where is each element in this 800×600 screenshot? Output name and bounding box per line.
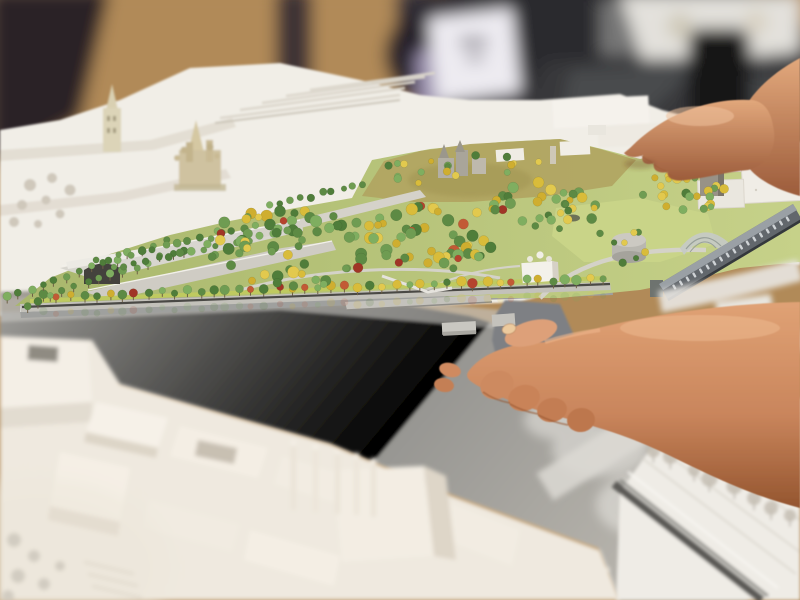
model-tree — [374, 221, 381, 228]
tree-reflection — [457, 294, 466, 303]
model-tree — [266, 201, 273, 208]
model-tree — [652, 174, 659, 181]
photo-architectural-model-scene — [0, 0, 800, 600]
model-tree — [406, 203, 418, 215]
model-tree — [534, 275, 542, 283]
model-tree — [76, 268, 83, 275]
finger-contact-shadow — [624, 159, 656, 169]
model-tree — [320, 281, 327, 288]
model-tree — [340, 281, 349, 290]
tree-reflection — [129, 306, 137, 314]
glassware — [744, 10, 768, 34]
model-tree — [532, 222, 539, 229]
tree-reflection — [393, 297, 401, 305]
tree-reflection — [407, 299, 413, 305]
model-tree — [394, 175, 402, 183]
model-tree — [28, 286, 36, 294]
model-tree — [693, 193, 700, 200]
model-tree — [577, 192, 587, 202]
model-tree — [93, 257, 99, 263]
tree-reflection — [236, 302, 243, 309]
model-tree — [196, 234, 204, 242]
model-tree — [215, 235, 225, 245]
model-tree — [149, 246, 156, 253]
model-tree — [483, 276, 493, 286]
model-tree — [523, 275, 531, 283]
tree-reflection — [560, 292, 569, 301]
model-tree — [452, 172, 459, 179]
model-tree — [600, 275, 607, 282]
model-tree — [163, 241, 170, 248]
tree-reflection — [572, 293, 581, 302]
model-tree — [14, 289, 21, 296]
model-tree — [138, 247, 146, 255]
model-tree — [587, 274, 595, 282]
model-tree — [165, 253, 173, 261]
tree-reflection — [508, 296, 514, 302]
model-tree — [252, 222, 259, 229]
model-tree — [657, 183, 664, 190]
tree-reflection — [277, 301, 283, 307]
model-tree — [256, 232, 264, 240]
tree-reflection — [302, 301, 308, 307]
model-tree — [633, 255, 639, 261]
tree-reflection — [198, 306, 205, 313]
model-tree — [319, 188, 327, 196]
model-tree — [562, 201, 569, 208]
model-tree — [187, 247, 195, 255]
model-tree — [392, 239, 400, 247]
model-tree — [280, 217, 287, 224]
model-tree — [663, 203, 670, 210]
model-tree — [547, 215, 556, 224]
model-tree — [504, 169, 510, 175]
tree-reflection — [431, 298, 437, 304]
model-tree — [394, 160, 401, 167]
model-tree — [171, 290, 178, 297]
model-tree — [658, 192, 666, 200]
model-tree — [50, 277, 57, 284]
white-slab — [552, 95, 649, 128]
model-tree — [156, 254, 162, 260]
model-tree — [34, 297, 42, 305]
model-tree — [393, 280, 402, 289]
tree-reflection — [81, 309, 89, 317]
tree-reflection — [600, 293, 606, 299]
model-tree — [505, 198, 516, 209]
model-tree — [210, 285, 219, 294]
model-tree — [118, 290, 127, 299]
tree-reflection — [118, 307, 126, 315]
tree-reflection — [468, 296, 477, 305]
model-tree — [243, 244, 251, 252]
model-tree — [312, 276, 320, 284]
model-tree — [700, 205, 708, 213]
model-tree — [467, 230, 479, 242]
model-tree — [3, 292, 12, 301]
model-tree — [415, 180, 421, 186]
model-tree — [116, 252, 122, 258]
model-tree — [120, 263, 127, 270]
model-tree — [431, 281, 438, 288]
model-tree — [382, 250, 392, 260]
tree-reflection — [379, 301, 385, 307]
tree-reflection — [497, 297, 503, 303]
tree-reflection — [247, 303, 253, 309]
forearm-highlight — [620, 315, 780, 341]
tree-reflection — [183, 303, 191, 311]
model-tree — [596, 230, 603, 237]
model-tree — [307, 194, 315, 202]
model-tree — [415, 279, 424, 288]
tree-reflection — [353, 301, 361, 309]
tree-reflection — [108, 307, 115, 314]
model-tree — [587, 213, 597, 223]
model-tree — [472, 208, 481, 217]
tree-reflection — [53, 311, 59, 317]
model-tree — [456, 276, 466, 286]
model-tree — [208, 253, 216, 261]
model-tree — [439, 258, 449, 268]
model-tree — [274, 206, 285, 217]
model-tree — [283, 250, 293, 260]
model-tree — [24, 302, 32, 310]
model-tree — [563, 215, 572, 224]
model-tree — [310, 215, 322, 227]
model-tree — [353, 283, 362, 292]
tree-reflection — [39, 307, 47, 315]
model-tree — [533, 177, 544, 188]
model-tree — [631, 229, 638, 236]
tree-reflection — [444, 296, 450, 302]
model-tree — [560, 189, 567, 196]
model-tree — [533, 197, 542, 206]
tree-reflection — [68, 308, 74, 314]
model-tree — [129, 289, 138, 298]
tree-reflection — [145, 306, 152, 313]
model-tree — [391, 209, 402, 220]
model-tree — [536, 214, 544, 222]
model-tree — [434, 208, 441, 215]
model-tree — [349, 183, 356, 190]
model-tree — [424, 258, 433, 267]
model-tree — [545, 184, 556, 195]
tree-reflection — [220, 303, 229, 312]
model-tree — [255, 214, 262, 221]
model-tree — [327, 188, 334, 195]
model-tree — [259, 284, 268, 293]
model-tree — [248, 277, 255, 284]
model-tree — [565, 207, 573, 215]
model-tree — [428, 158, 434, 164]
model-tree — [247, 286, 254, 293]
model-tree — [455, 255, 462, 262]
model-tree — [400, 160, 407, 167]
model-tree — [359, 181, 366, 188]
model-tree — [407, 281, 414, 288]
model-tree — [289, 281, 298, 290]
model-tree — [159, 287, 166, 294]
model-tree — [364, 221, 374, 231]
model-tree — [63, 273, 70, 280]
model-tree — [497, 279, 504, 286]
tree-reflection — [327, 298, 335, 306]
model-tree — [508, 182, 519, 193]
model-tree — [679, 205, 687, 213]
tree-reflection — [366, 298, 374, 306]
model-tree — [443, 279, 450, 286]
model-tree — [535, 159, 541, 165]
tree-reflection — [416, 297, 424, 305]
model-tree — [378, 283, 385, 290]
model-tree — [39, 290, 48, 299]
model-tree — [552, 195, 561, 204]
wire-tree — [764, 501, 778, 515]
model-tree — [458, 219, 468, 229]
wire-tree — [784, 509, 796, 521]
model-tree — [685, 192, 693, 200]
glassware — [667, 13, 693, 39]
model-tree — [314, 285, 321, 292]
rooflight-dark — [27, 345, 58, 362]
tree-reflection — [587, 291, 594, 298]
model-tree — [235, 249, 243, 257]
model-tree — [619, 259, 627, 267]
model-tree — [467, 278, 477, 288]
model-tree — [365, 281, 374, 290]
model-tree — [719, 184, 728, 193]
model-tree — [556, 225, 563, 232]
model-tree — [88, 262, 95, 269]
model-tree — [450, 264, 458, 272]
model-tree — [560, 274, 570, 284]
model-tree — [352, 218, 362, 228]
model-tree — [142, 258, 149, 265]
model-tree — [300, 259, 309, 268]
model-tree — [106, 269, 114, 277]
model-tree — [591, 205, 597, 211]
model-tree — [219, 217, 230, 228]
model-tree — [40, 282, 46, 288]
model-tree — [145, 289, 153, 297]
model-tree — [474, 252, 483, 261]
photo-canvas — [0, 0, 800, 600]
model-tree — [295, 242, 303, 250]
tree-reflection — [94, 310, 101, 317]
model-tree — [220, 285, 230, 295]
model-tree — [93, 293, 100, 300]
model-tree — [107, 290, 115, 298]
model-tree — [611, 239, 617, 245]
model-tree — [203, 240, 211, 248]
model-tree — [503, 153, 511, 161]
tree-reflection — [172, 307, 178, 313]
model-tree — [95, 275, 102, 282]
model-tree — [353, 263, 363, 273]
model-tree — [284, 227, 292, 235]
model-tree — [268, 248, 276, 256]
model-tree — [176, 249, 184, 257]
tree-reflection — [315, 302, 321, 308]
model-tree — [53, 294, 60, 301]
model-tree — [507, 161, 515, 169]
model-tree — [472, 151, 480, 159]
model-tree — [329, 212, 337, 220]
model-tree — [491, 205, 500, 214]
model-tree — [183, 285, 192, 294]
model-tree — [226, 260, 236, 270]
model-tree — [313, 227, 322, 236]
model-tree — [235, 285, 243, 293]
model-tree — [128, 252, 135, 259]
model-tree — [550, 278, 558, 286]
model-tree — [105, 257, 112, 264]
model-tree — [301, 284, 308, 291]
model-tree — [368, 233, 378, 243]
model-tree — [418, 169, 425, 176]
model-tree — [242, 214, 251, 223]
model-tree — [260, 270, 269, 279]
tree-reflection — [534, 292, 541, 299]
model-tree — [342, 265, 349, 272]
model-tree — [443, 168, 451, 176]
model-tree — [405, 228, 416, 239]
model-tree — [395, 259, 403, 267]
model-tree — [641, 248, 649, 256]
model-tree — [273, 278, 282, 287]
model-tree — [557, 209, 564, 216]
model-tree — [485, 242, 496, 253]
model-tree — [223, 243, 234, 254]
model-tree — [288, 266, 300, 278]
model-tree — [639, 191, 647, 199]
model-tree — [131, 260, 137, 266]
tree-reflection — [550, 295, 557, 302]
model-tree — [385, 162, 393, 170]
model-tree — [183, 237, 191, 245]
round-pavilion — [612, 233, 646, 263]
tree-reflection — [483, 294, 492, 303]
model-tree — [286, 197, 293, 204]
model-tree — [47, 292, 53, 298]
model-tree — [507, 279, 514, 286]
tree-reflection — [289, 303, 295, 309]
model-tree — [341, 186, 347, 192]
model-tree — [571, 275, 581, 285]
model-tree — [198, 288, 205, 295]
tree-reflection — [260, 302, 268, 310]
tree-reflection — [523, 292, 531, 300]
model-tree — [58, 287, 65, 294]
tree-reflection — [340, 298, 348, 306]
tree-reflection — [159, 304, 165, 310]
model-tree — [518, 216, 527, 225]
model-tree — [85, 278, 92, 285]
model-tree — [324, 223, 334, 233]
model-tree — [228, 227, 235, 234]
model-tree — [621, 240, 627, 246]
model-tree — [298, 270, 306, 278]
name-card-text-blur — [466, 55, 484, 61]
name-card-text-blur — [460, 38, 487, 46]
model-tree — [442, 214, 454, 226]
hand-highlight — [666, 106, 734, 126]
model-tree — [71, 283, 77, 289]
model-tree — [272, 228, 282, 238]
model-tree — [708, 204, 714, 210]
model-tree — [287, 216, 297, 226]
tree-reflection — [210, 303, 218, 311]
model-tree — [111, 264, 117, 270]
model-tree — [173, 239, 181, 247]
model-tree — [81, 291, 89, 299]
model-tree — [344, 232, 355, 243]
model-tree — [297, 194, 304, 201]
